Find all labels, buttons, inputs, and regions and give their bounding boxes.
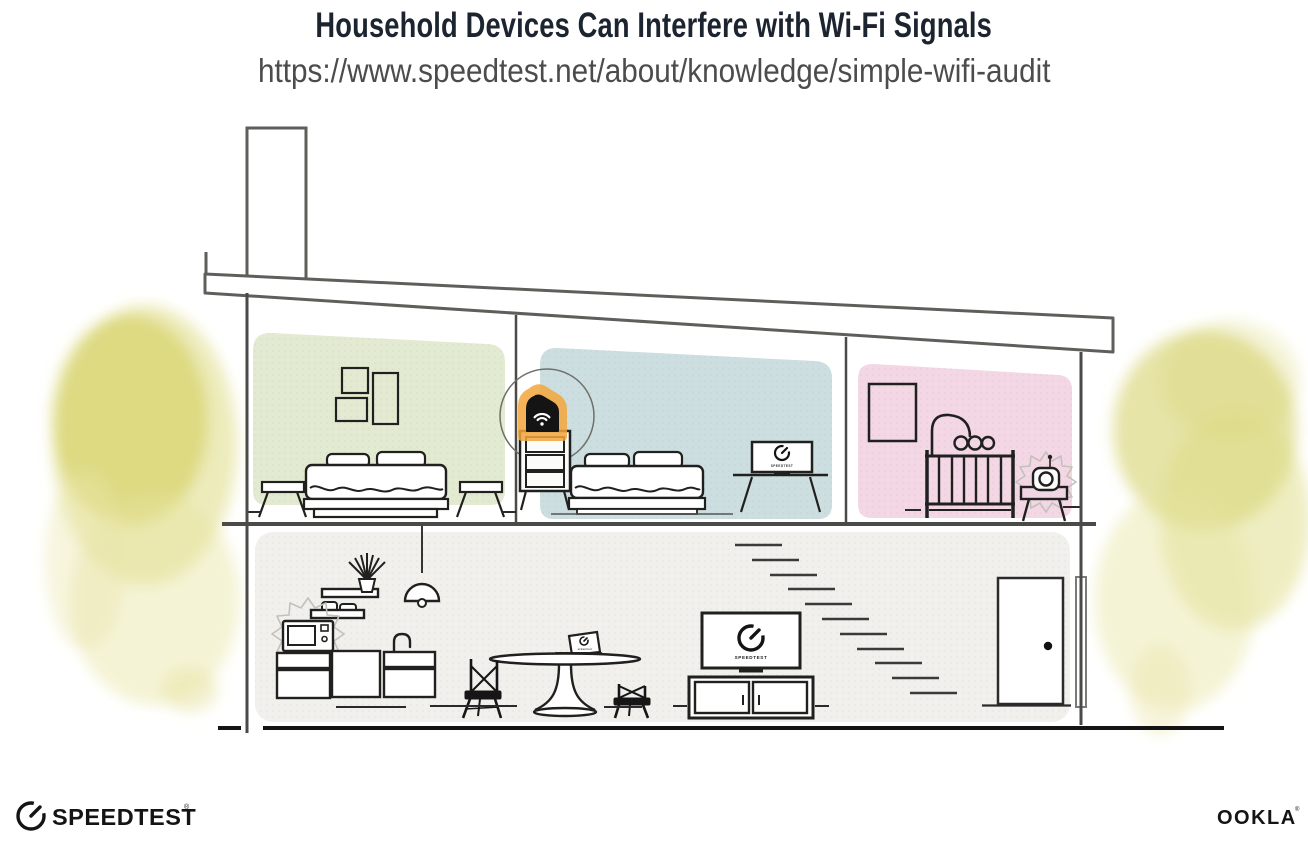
house-illustration: SPEEDTEST	[0, 0, 1308, 861]
ookla-wordmark: OOKLA	[1217, 807, 1297, 829]
living-room-tv: SPEEDTEST	[702, 613, 800, 673]
speedtest-registered-mark: ®	[184, 803, 190, 811]
chimney	[247, 128, 306, 286]
bedroom-tv-screen-label: SPEEDTEST	[771, 464, 794, 468]
speedtest-wordmark: SPEEDTEST	[52, 804, 196, 830]
microwave	[283, 621, 333, 651]
kitchen-counter	[277, 651, 435, 698]
laptop-screen-label: SPEEDTEST	[578, 649, 593, 651]
ookla-logo: OOKLA ®	[1217, 806, 1300, 829]
tv-console	[689, 677, 813, 718]
living-room-tv-screen-label: SPEEDTEST	[735, 655, 768, 660]
speedtest-gauge-icon	[18, 803, 44, 829]
wifi-router	[522, 388, 563, 437]
bush-right	[1095, 320, 1308, 735]
speedtest-logo: SPEEDTEST ®	[18, 803, 196, 830]
bush-left	[45, 305, 240, 712]
ookla-registered-mark: ®	[1295, 806, 1300, 813]
bedroom-tv: SPEEDTEST	[752, 442, 812, 475]
wifi-audit-infographic: Household Devices Can Interfere with Wi-…	[0, 0, 1308, 861]
door-knob	[1044, 642, 1052, 650]
